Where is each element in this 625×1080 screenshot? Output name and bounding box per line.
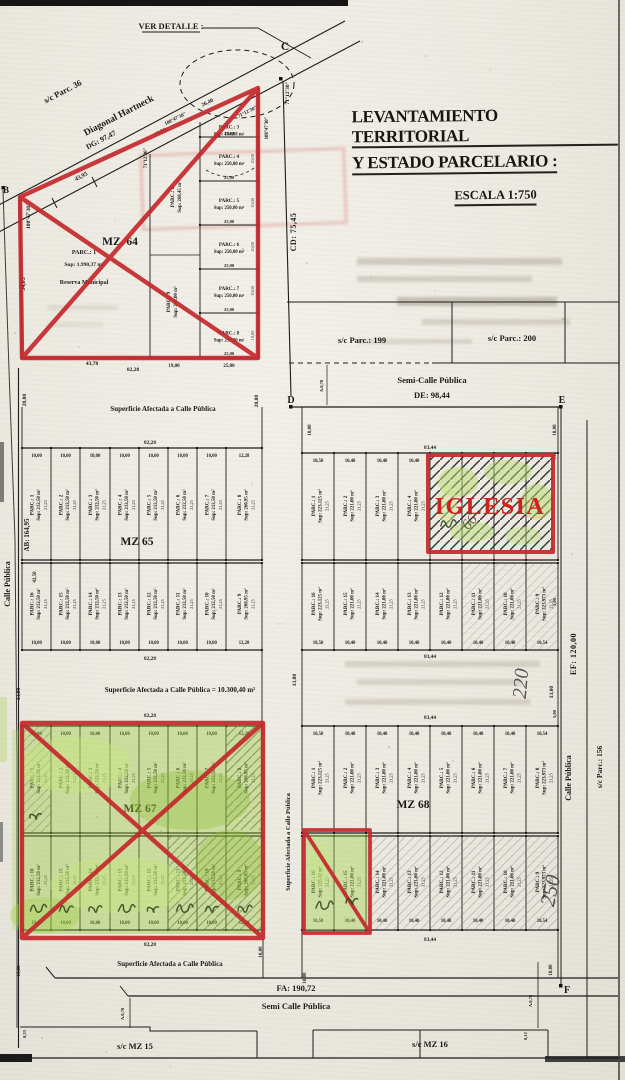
parcel-area-label: Sup: 212,50 m²: [211, 489, 217, 521]
parcel-width-label: 10,40: [377, 732, 388, 737]
scanned-survey-page: LEVANTAMIENTO TERRITORIAL Y ESTADO PARCE…: [0, 0, 625, 1080]
parcel-depth-label: 21,25: [160, 500, 166, 509]
parcel-width-label: 25,00: [224, 351, 235, 356]
superficie-afectada-label-2: Superficie Afectada a Calle Pública: [117, 960, 223, 968]
parcel-area-label: Sup: 250,00 m²: [214, 249, 245, 255]
parcel-width-label: 10,54: [537, 732, 548, 737]
scan-speck: [41, 1037, 43, 1039]
parcel-depth-label: 21,25: [218, 599, 224, 608]
parcel-name-label: PARC.: 16: [30, 592, 36, 616]
block-total-width-label: 82,28: [144, 942, 156, 948]
parcel-depth-label: 21,25: [549, 773, 555, 782]
scan-speck: [105, 1051, 107, 1053]
parcel-area-label: Sup: 223,125 m²: [318, 489, 324, 523]
scan-smudge: [0, 822, 3, 862]
cd-dimension-label: CD: 75,45: [289, 213, 298, 252]
survey-dot: [557, 452, 559, 454]
superficie-afectada-label-1: Superficie Afectada a Calle Pública: [110, 405, 216, 413]
parcel-name-label: PARC.: 8: [237, 494, 243, 515]
scan-speck: [233, 13, 234, 14]
parcel-depth-label: 21,25: [325, 599, 331, 608]
parcel-area-label: Sup: 212,50 m²: [36, 588, 42, 620]
survey-dot: [429, 649, 431, 651]
survey-dot: [429, 832, 431, 834]
block-total-width-label: 82,28: [144, 656, 156, 662]
parcel-name-label: PARC.: 2: [343, 767, 349, 788]
sc-mz-16-label: s/c MZ 16: [412, 1039, 448, 1049]
parcel-width-label: 12,28: [239, 641, 250, 646]
parcel-depth-label: 21,25: [218, 500, 224, 509]
scan-edge-bottom-right: [545, 1056, 625, 1062]
ef-dimension-label: EF: 120,00: [569, 633, 578, 675]
corner-f-label: F: [564, 985, 570, 996]
green-spill: [0, 697, 7, 762]
parcel-name-label: PARC.: 7: [503, 767, 509, 788]
parcel-name-label: PARC.: 4: [219, 155, 240, 160]
survey-dot: [525, 832, 527, 834]
scan-speck: [142, 360, 144, 362]
survey-dot: [225, 562, 227, 564]
scan-speck: [14, 332, 16, 334]
parcel-area-label: Sup: 223,973 m²: [542, 761, 548, 795]
parcel-depth-label: 21,25: [43, 500, 49, 509]
dimension-label: 13,00: [16, 688, 22, 701]
parcel-depth-label: 10,00: [250, 242, 256, 252]
parcel-width-label: 10,00: [119, 454, 130, 459]
parcel-width-label: 10,40: [345, 459, 356, 464]
survey-dot: [557, 559, 559, 561]
parcel-area-label: Sup: 221,00 m²: [414, 762, 420, 794]
parcel-width-label: 25,00: [224, 175, 235, 180]
parcel-depth-label: 10,00: [250, 286, 256, 296]
parcel-area-label: Sup: 223,125 m²: [318, 587, 324, 621]
parcel-width-label: 10,00: [177, 641, 188, 646]
dimension-label: 20,00: [22, 394, 28, 407]
parcel-name-label: PARC.: 5: [147, 494, 153, 515]
parcel-name-label: PARC.: 4: [407, 495, 413, 516]
parcel-width-label: 25,00: [224, 263, 235, 268]
survey-dot: [21, 559, 23, 561]
dimension-label: 10,00: [553, 424, 558, 436]
parcel-area-label: Sup: 250,00 m²: [214, 161, 245, 167]
parcel-name-label: PARC.: 6: [471, 767, 477, 788]
parcel-depth-label: 21,25: [325, 773, 331, 782]
dimension-label: 71°12'30": [144, 148, 149, 169]
parcel-depth-label: 21,25: [131, 599, 137, 608]
scan-speck: [6, 98, 7, 99]
parcel-name-label: PARC.: 15: [59, 592, 65, 616]
calle-publica-right-label: Calle Pública: [564, 755, 573, 801]
de-dimension-label: DE: 98,44: [414, 390, 451, 400]
parcel-area-label: Sup: 212,50 m²: [36, 489, 42, 521]
ver-detalle-leader: [202, 28, 311, 58]
survey-dot: [333, 452, 335, 454]
scan-speck: [571, 553, 573, 555]
block-total-width-label: 82,28: [144, 713, 156, 719]
parcel-name-label: PARC.: 4: [118, 494, 124, 515]
parcel-width-label: 10,40: [345, 732, 356, 737]
dimension-label: 13,00: [292, 674, 298, 687]
parcel-width-label: 10,40: [409, 641, 420, 646]
parcel-width-label: 10,00: [31, 454, 42, 459]
survey-dot: [261, 447, 263, 449]
calle-publica-left-label: Calle Pública: [3, 561, 12, 607]
parcel-depth-label: 21,25: [421, 501, 427, 510]
survey-dot: [261, 649, 263, 651]
survey-dot: [365, 649, 367, 651]
survey-dot: [397, 559, 399, 561]
scan-speck: [498, 304, 499, 305]
parcel-depth-label: 21,25: [357, 599, 363, 608]
parcel-depth-label: 21,25: [131, 500, 137, 509]
parcel-depth-label: 21,25: [389, 599, 395, 608]
dimension-label: A.0,78: [319, 379, 324, 392]
parcel-width-label: 10,40: [345, 641, 356, 646]
survey-dot: [21, 562, 23, 564]
survey-dot: [167, 562, 169, 564]
survey-dot: [21, 447, 23, 449]
parcel-name-label: PARC.: 14: [375, 592, 381, 616]
parcel-area-label: Sup: 212,50 m²: [182, 489, 188, 521]
dimension-label: 82,28: [127, 367, 140, 373]
scan-speck: [452, 760, 454, 762]
dimension-label: 5,00: [552, 709, 557, 718]
scan-speck: [489, 69, 491, 71]
ghost-text-bar: [357, 276, 532, 282]
parcel-area-label: Sup: 212,50 m²: [124, 588, 130, 620]
sc-parc-200-label: s/c Parc.: 200: [488, 333, 536, 343]
survey-dot: [225, 649, 227, 651]
parcel-depth-label: 21,25: [189, 599, 195, 608]
parcel-depth-label: 21,25: [357, 501, 363, 510]
parcel-area-label: Sup: 221,00 m²: [510, 762, 516, 794]
corner-b-label: B: [3, 185, 9, 195]
scan-speck: [425, 55, 427, 57]
scan-speck: [215, 609, 217, 611]
survey-dot: [261, 559, 263, 561]
survey-dot: [461, 725, 463, 727]
parcel-name-label: PARC.: 3: [375, 495, 381, 516]
survey-dot: [138, 447, 140, 449]
survey-dot: [196, 562, 198, 564]
green-spill: [12, 730, 21, 930]
parcel-width-label: 10,00: [206, 454, 217, 459]
dimension-label: 0,12: [523, 1031, 528, 1040]
parcel-name-label: PARC.: 15: [343, 592, 349, 616]
iglesia-green-patch: [484, 460, 532, 484]
parcel-area-label: Sup: 260,95 m²: [244, 489, 250, 521]
fa-dimension-label: FA: 190,72: [276, 983, 315, 993]
scan-speck: [298, 28, 299, 29]
block-total-width-label: 83,44: [424, 715, 436, 721]
handwritten-220: 220: [509, 668, 534, 700]
ghost-text-bar: [422, 319, 570, 325]
dimension-label: 10,00: [259, 946, 264, 958]
corner-d-label: D: [287, 395, 294, 406]
parcel-width-label: 10,00: [177, 454, 188, 459]
dimension-label: A.0,78: [120, 1007, 125, 1020]
survey-dot: [167, 447, 169, 449]
parcel-area-label: Sup: 221,00 m²: [414, 490, 420, 522]
parcel-depth-label: 10,00: [250, 198, 256, 208]
survey-tick: [120, 986, 128, 996]
parcel-width-label: 10,40: [505, 732, 516, 737]
dimension-label: 108°47'30": [265, 116, 270, 139]
sc-parc-199-label: s/c Parc.: 199: [338, 335, 386, 345]
sc-parc-156-label: s/c Parc.: 156: [595, 745, 604, 788]
parcel-depth-label: 21,25: [102, 599, 108, 608]
ghost-text-bar: [48, 322, 103, 327]
parcel-depth-label: 21,25: [160, 599, 166, 608]
survey-dot: [50, 649, 52, 651]
survey-dot: [261, 562, 263, 564]
scan-speck: [361, 41, 363, 43]
semi-calle-publica-label: Semi-Calle Pública: [397, 375, 467, 385]
survey-dot: [333, 559, 335, 561]
parcel-depth-label: 21,25: [189, 500, 195, 509]
parcel-width-label: 10,00: [90, 641, 101, 646]
scan-speck: [152, 596, 153, 597]
parcel-area-label: Sup: 212,50 m²: [211, 588, 217, 620]
survey-dot: [196, 559, 198, 561]
parcel-area-label: Sup: 221,00 m²: [350, 490, 356, 522]
survey-dot: [79, 559, 81, 561]
scan-speck: [315, 497, 317, 499]
scan-speck: [562, 318, 565, 321]
parcel-width-label: 10,40: [441, 641, 452, 646]
parcel-width-label: 10,00: [60, 641, 71, 646]
parcel-width-label: 25,00: [224, 219, 235, 224]
scan-speck: [178, 234, 179, 235]
parcel-name-label: PARC.: 2: [59, 494, 65, 515]
survey-dot: [199, 136, 201, 138]
parcel-name-label: PARC.: 12: [439, 592, 445, 616]
survey-dot: [429, 725, 431, 727]
block-total-width-label: 83,44: [424, 654, 436, 660]
parcel-name-label: PARC.: 6: [219, 243, 240, 248]
parcel-name-label: PARC.: 14: [88, 592, 94, 616]
ghost-text-bar: [345, 661, 540, 667]
parcel-width-label: 10,40: [377, 641, 388, 646]
dimension-label: 10,00: [549, 964, 554, 976]
scan-edge-top: [0, 0, 348, 6]
survey-dot: [365, 725, 367, 727]
parcel-area-label: Sup: 212,50 m²: [153, 588, 159, 620]
sc-parc-36-label: s/c Parc. 36: [42, 77, 83, 105]
survey-dot: [333, 649, 335, 651]
survey-dot: [461, 559, 463, 561]
survey-dot: [79, 447, 81, 449]
survey-dot: [79, 562, 81, 564]
parcel-width-label: 10,40: [409, 732, 420, 737]
parcel-width-label: 10,00: [31, 641, 42, 646]
parcel-area-label: Sup: 221,00 m²: [382, 588, 388, 620]
parcel-depth-label: 21,25: [357, 773, 363, 782]
parcel-width-label: 10,00: [90, 454, 101, 459]
parcel-name-label: PARC.: 1: [30, 494, 36, 515]
survey-dot: [199, 312, 201, 314]
dimension-label: 19,00: [168, 364, 180, 369]
scan-speck: [114, 220, 116, 222]
parcel-depth-label: 21,25: [389, 773, 395, 782]
survey-dot: [109, 447, 111, 449]
parcel-width-label: 12,28: [239, 454, 250, 459]
parcel-area-label: Sup: 268,45 m²: [177, 181, 183, 213]
survey-dot: [196, 447, 198, 449]
parcel-name-label: PARC.: 7: [219, 287, 240, 292]
survey-dot: [196, 649, 198, 651]
parcel-name-label: PARC.: 6: [176, 494, 182, 515]
scan-speck: [306, 262, 308, 264]
survey-dot: [525, 725, 527, 727]
semi-calle-publica-bottom-label: Semi Calle Pública: [262, 1001, 331, 1011]
parcel-width-label: 10,00: [148, 641, 159, 646]
parcel-area-label: Sup: 250,00 m²: [214, 293, 245, 299]
survey-dot: [301, 559, 303, 561]
parcel-depth-label: 21,25: [43, 599, 49, 608]
iglesia-green-patch: [505, 527, 541, 545]
parcel-depth-label: 21,25: [102, 500, 108, 509]
parcel-area-label: Sup: 212,50 m²: [95, 588, 101, 620]
parcel-name-label: PARC.: 13: [407, 592, 413, 616]
scan-speck: [78, 346, 80, 348]
survey-dot: [109, 559, 111, 561]
parcel-area-label: Sup: 221,00 m²: [350, 762, 356, 794]
survey-dot: [50, 447, 52, 449]
survey-dot: [50, 562, 52, 564]
survey-dot: [365, 559, 367, 561]
survey-dot: [397, 562, 399, 564]
ab-dimension-label: AB: 164,95: [23, 518, 31, 552]
survey-dot: [333, 725, 335, 727]
parcel-area-label: Sup: 212,50 m²: [182, 588, 188, 620]
ghost-text-bar: [48, 305, 118, 310]
parcel-area-label: Sup: 221,00 m²: [414, 588, 420, 620]
parcel-width-label: 25,00: [224, 307, 235, 312]
survey-dot: [429, 562, 431, 564]
parcel-depth-label: 21,25: [453, 773, 459, 782]
survey-dot: [397, 832, 399, 834]
survey-dot: [199, 180, 201, 182]
survey-dot: [365, 832, 367, 834]
survey-dot: [50, 559, 52, 561]
parcel-depth-label: 21,25: [453, 599, 459, 608]
iglesia-label: IGLESIA: [435, 494, 546, 520]
dimension-label: 25,00: [223, 364, 235, 369]
parcel-area-label: Sup: 223,125 m²: [318, 761, 324, 795]
scan-speck: [370, 276, 372, 278]
parcel-width-label: 10,40: [441, 732, 452, 737]
parcel-name-label: PARC.: 5: [219, 199, 240, 204]
parcel-depth-label: 21,25: [251, 500, 257, 509]
survey-dot: [109, 649, 111, 651]
survey-dot: [557, 725, 559, 727]
scan-speck: [525, 1009, 526, 1010]
scan-speck: [379, 511, 380, 512]
diagonal-hartneck-label: Diagonal Hartneck: [82, 94, 156, 139]
mz68-light-hatch: [368, 836, 558, 930]
scan-speck: [169, 1065, 171, 1067]
survey-dot: [199, 224, 201, 226]
survey-dot: [138, 562, 140, 564]
survey-dot: [365, 562, 367, 564]
scan-speck: [434, 290, 436, 292]
dimension-label: A.0,78: [528, 994, 533, 1007]
parcel-width-label: 10,40: [377, 459, 388, 464]
parcel-width-label: 10,50: [313, 732, 324, 737]
parcel-depth-label: 21,25: [251, 599, 257, 608]
survey-dot: [167, 559, 169, 561]
ghost-text-bar: [357, 679, 522, 685]
parcel-area-label: Sup: 221,00 m²: [382, 490, 388, 522]
ghost-text-bar: [357, 258, 562, 265]
survey-dot: [493, 559, 495, 561]
block-label: MZ 68: [397, 799, 430, 811]
parcel-name-label: PARC.: 12: [147, 592, 153, 616]
parcel-area-label: Sup: 221,00 m²: [446, 588, 452, 620]
scan-speck: [388, 746, 391, 749]
survey-dot: [557, 832, 559, 834]
survey-dot: [225, 559, 227, 561]
survey-dot: [397, 649, 399, 651]
parcel-width-label: 10,50: [313, 459, 324, 464]
corner-e-label: E: [559, 395, 566, 406]
survey-dot: [138, 559, 140, 561]
survey-dot: [109, 562, 111, 564]
diagonal-street-upper-line: [0, 21, 345, 207]
parcel-width-label: 10,50: [313, 641, 324, 646]
mz15-box-top: [20, 1027, 257, 1031]
survey-dot: [461, 832, 463, 834]
parcel-depth-label: 21,25: [421, 773, 427, 782]
survey-dot: [199, 268, 201, 270]
parcel-name-label: PARC.: 1: [72, 250, 96, 256]
dimension-label: 42,50: [33, 571, 38, 583]
survey-dot: [333, 562, 335, 564]
survey-dot: [167, 649, 169, 651]
block-total-width-label: 82,28: [144, 440, 156, 446]
parcel-name-label: PARC.: 1: [311, 767, 317, 788]
corner-c-label: C: [281, 41, 289, 53]
scan-speck: [251, 483, 253, 485]
parcel-area-label: Sup: 212,50 m²: [65, 588, 71, 620]
parcel-area-label: Sup: 221,00 m²: [478, 762, 484, 794]
parcel-depth-label: 21,25: [485, 773, 491, 782]
parcel-area-label: Sup: 221,00 m²: [350, 588, 356, 620]
mz64-red-cross: [20, 88, 258, 358]
block-total-width-label: 83,44: [424, 445, 436, 451]
parcel-area-label: Sup: 260,95 m²: [244, 588, 250, 620]
survey-dot: [525, 559, 527, 561]
survey-dot: [301, 725, 303, 727]
parcel-area-label: Sup: 212,50 m²: [95, 489, 101, 521]
scan-speck: [516, 774, 518, 776]
parcel-depth-label: 21,25: [72, 500, 78, 509]
green-patch: [20, 737, 130, 793]
scan-speck: [23, 567, 25, 569]
survey-tick: [46, 967, 55, 978]
parcel-width-label: 10,00: [148, 454, 159, 459]
parcel-width-label: 10,00: [60, 454, 71, 459]
parcel-width-label: 25,00: [224, 131, 235, 136]
ver-detalle-label: VER DETALLE :: [138, 21, 203, 31]
parcel-width-label: 10,00: [119, 641, 130, 646]
survey-dot: [301, 452, 303, 454]
scan-speck: [242, 248, 245, 251]
parcel-depth-label: 10,00: [250, 331, 256, 341]
sc-mz-15-label: s/c MZ 15: [117, 1041, 153, 1051]
parcel-width-label: 10,40: [409, 459, 420, 464]
